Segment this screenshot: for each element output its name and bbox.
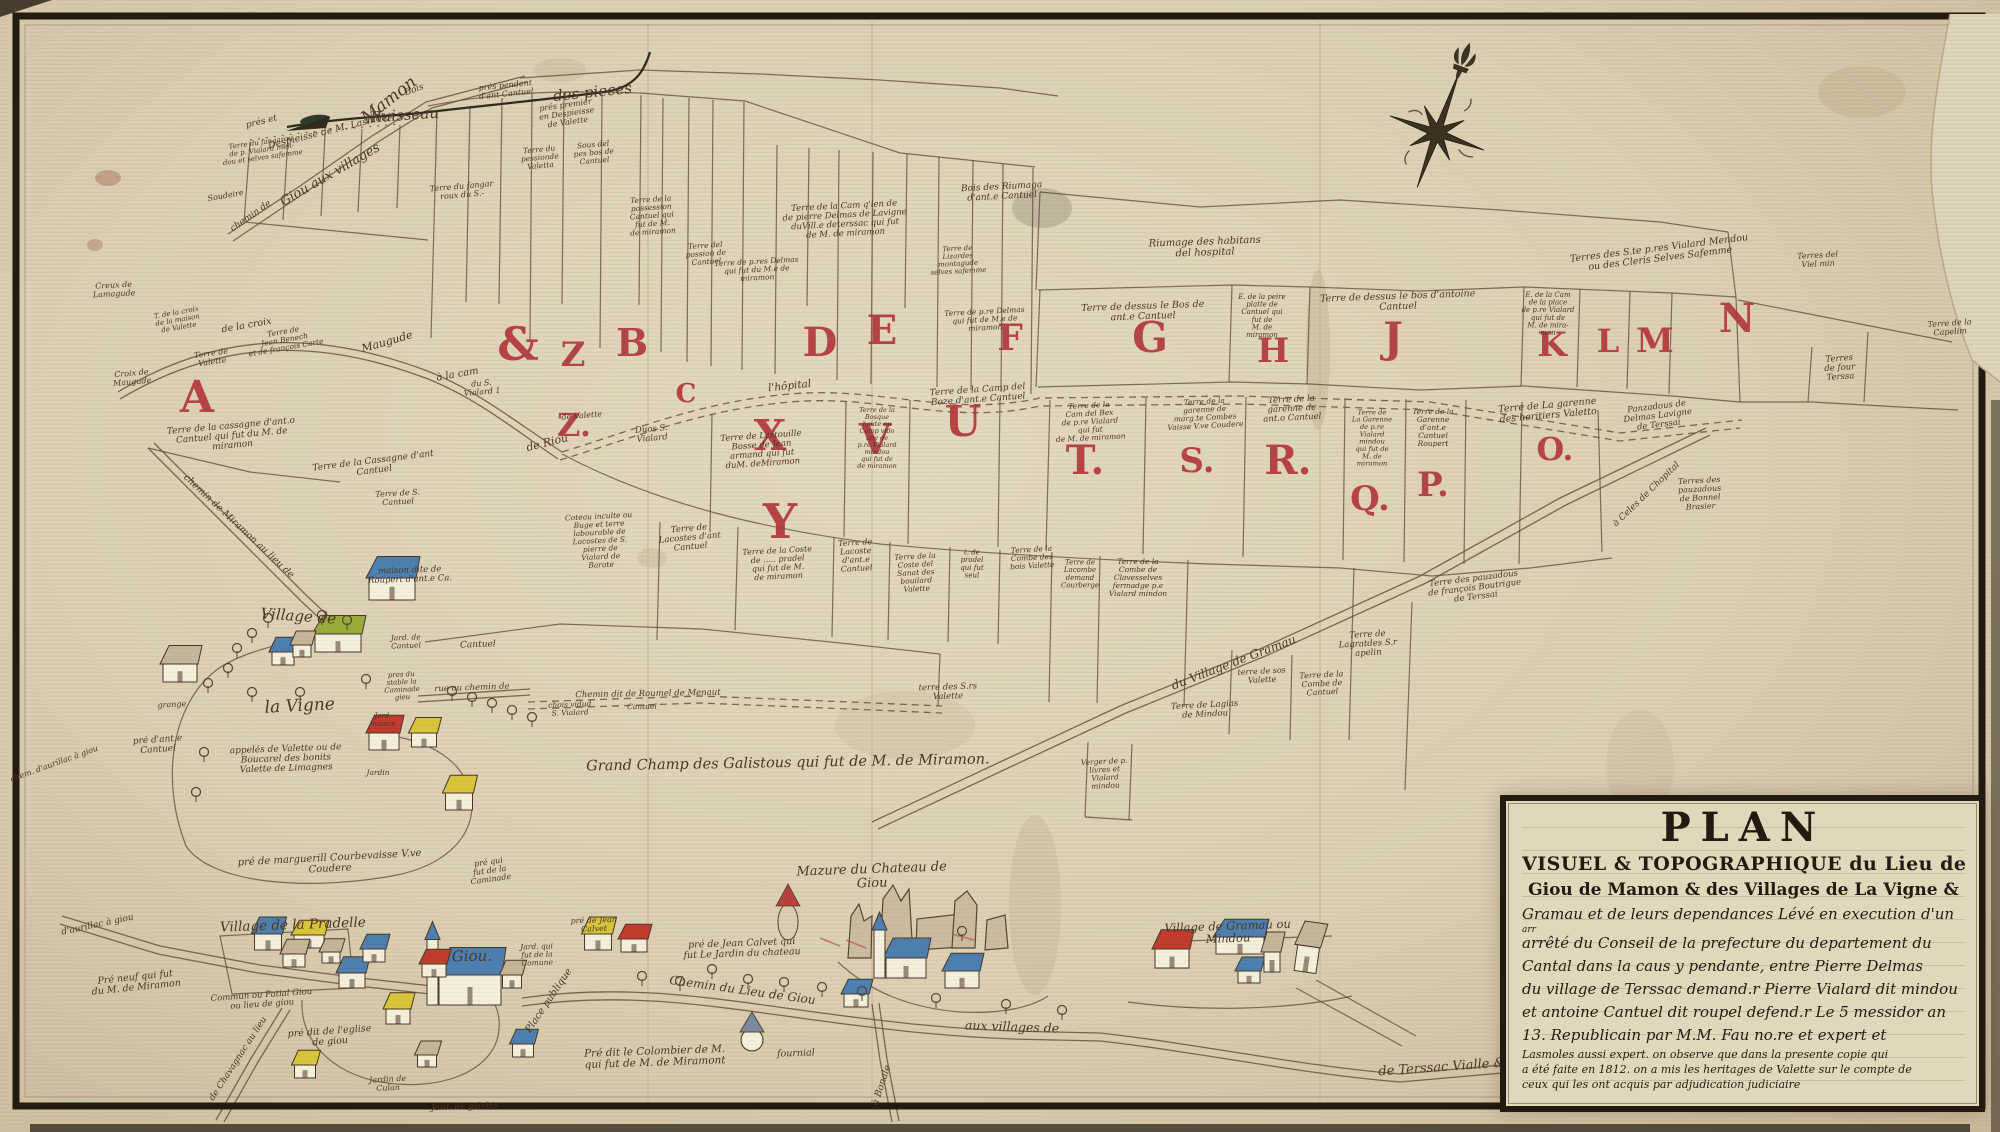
map-label: d'aurillac à giou xyxy=(60,911,135,937)
map-label: Terre de laCapelim xyxy=(1927,317,1972,338)
map-label: t. depradelqui futseul xyxy=(960,549,984,580)
village-house xyxy=(1152,930,1194,968)
map-label: Terre de lapossessionCantuel quifut de M… xyxy=(628,193,677,237)
map-label: Terre deValette xyxy=(193,346,230,368)
map-label: Terre de laCombe deClavesselvesfermadge … xyxy=(1109,557,1167,598)
colombier-tower xyxy=(740,1012,764,1051)
tree-icon xyxy=(708,965,717,980)
map-label: Pré neuf qui futdu M. de Miramon xyxy=(90,967,181,998)
map-label: chois vidudS. Vialard xyxy=(548,699,592,718)
map-label: Terre de laGarenned'ant.eCantuelRoupert xyxy=(1412,407,1453,448)
map-label: pré dit de l'eglisede giou xyxy=(287,1023,373,1050)
map-label: Maugude xyxy=(359,328,415,355)
map-label: maison dite deRoupert d'ant.e Ca. xyxy=(367,564,453,586)
map-label: Creux deLamagude xyxy=(91,280,136,300)
map-label: Riumage des habitansdel hospital xyxy=(1147,235,1261,261)
parcel-letter: E xyxy=(867,307,898,354)
parcel-letter: A xyxy=(179,372,215,423)
map-label: Cantuel xyxy=(627,702,657,712)
map-label: du Village de Gramau xyxy=(1169,632,1298,692)
map-label: Terre de la Cam q'ien dede pierre Delmas… xyxy=(782,198,908,242)
map-label: Jard.maison xyxy=(370,712,396,728)
parcel-letter: J xyxy=(1379,313,1403,362)
map-label: pres dustable laCaminadegieu xyxy=(383,670,420,703)
map-label: Terre de laCam del Bexde p.re Vialardqui… xyxy=(1054,399,1126,444)
tree-icon xyxy=(818,983,827,998)
map-label: pré d'ant.eCantuel xyxy=(132,732,183,756)
cartouche-line: VISUEL & TOPOGRAPHIQUE du Lieu de xyxy=(1522,851,1965,878)
map-label: Village de xyxy=(260,604,337,627)
manuscript-map: &ZBCDEFGHJKLMNAZ.XVUYT.S.R.Q.P.O.Ruissea… xyxy=(0,0,2000,1132)
title-cartouche: PLAN VISUEL & TOPOGRAPHIQUE du Lieu deGi… xyxy=(1500,795,1985,1112)
map-label: grange xyxy=(157,699,186,710)
tree-icon xyxy=(362,675,371,690)
map-label: Coteau inculte ouBuge et terrelabourable… xyxy=(565,510,635,571)
map-label: chemin de Miramon au lieu de xyxy=(181,472,296,581)
map-label: Terre deLa Garennede p.reVialardmindouqu… xyxy=(1351,408,1392,467)
map-label: à Celes de Chopital xyxy=(1611,459,1683,529)
parcel-letter: M xyxy=(1636,321,1674,361)
map-label: Sous delpes bos deCantuel xyxy=(573,138,616,167)
map-label: la Vigne xyxy=(264,694,335,718)
map-label: Commun ou Patial Giouou lieu de giou xyxy=(210,987,313,1013)
map-label: E. de la Camde la placede p.re Vialardqu… xyxy=(1522,291,1575,337)
village-house xyxy=(409,718,442,748)
map-label: Terres des S.te p.res Vialard Mendouou d… xyxy=(1569,232,1750,275)
map-label: Pré dit le Colombier de M.qui fut de M. … xyxy=(583,1043,727,1071)
map-label: Soudeire xyxy=(207,188,245,203)
map-label: pré quifut de laCaminade xyxy=(468,855,512,887)
map-label: Terre de La garennedes heritiers Valetto xyxy=(1498,396,1598,426)
map-label: Terre deLacostes d'antCantuel xyxy=(657,521,723,555)
map-label: Croix deMaugude xyxy=(111,367,152,388)
map-label: Giou. xyxy=(452,947,493,966)
map-label: Terre de la Camp delBoze d'ant.e Cantuel xyxy=(929,382,1027,408)
parcel-letter: P. xyxy=(1417,465,1449,505)
village-houses xyxy=(160,557,1328,1079)
village-house xyxy=(942,953,984,988)
tree-icon xyxy=(204,679,213,694)
map-label: Jard. quifut de laComune xyxy=(518,941,554,967)
map-label: Terres despauzadousde BonnelBrasier xyxy=(1677,475,1722,512)
cartouche-line: Lasmoles aussi expert. on observe que da… xyxy=(1522,1047,1965,1062)
map-label: Jardin deCulan xyxy=(367,1074,407,1094)
village-house xyxy=(510,1029,539,1057)
tree-icon xyxy=(488,699,497,714)
village-house xyxy=(618,924,652,952)
map-label: terre de sosValette xyxy=(1237,665,1286,685)
parcel-letter: T. xyxy=(1066,437,1105,484)
cartouche-line: Giou de Mamon & des Villages de La Vigne… xyxy=(1522,878,1965,903)
map-label: Terre de lagarenne deant.o Cantuel xyxy=(1262,393,1322,424)
parcel-letter: Q. xyxy=(1350,479,1390,519)
map-label: Terre dupessiondeValetta xyxy=(520,143,561,171)
parcel-letter: B xyxy=(616,320,648,365)
map-label: du S.Vialard 1 xyxy=(463,377,501,398)
map-label: aux villages de xyxy=(965,1017,1060,1035)
map-label: Jardin xyxy=(364,768,389,777)
map-label: pré de marguerill Courbevaisse V.veCoude… xyxy=(237,848,422,879)
map-label: Verger de p.livres etVialardmindou xyxy=(1081,756,1129,792)
map-label: Terre de la Costede ..... pradelqui fut … xyxy=(742,544,814,583)
fleur-de-lis-icon xyxy=(1447,39,1480,81)
tree-icon xyxy=(932,994,941,1009)
map-label: de Terssac Vialle & xyxy=(1378,1056,1506,1080)
map-label: Duos S.Vialard xyxy=(634,423,669,445)
map-label: Village de la Pradelle xyxy=(220,914,366,935)
tree-icon xyxy=(508,706,517,721)
compass-rose-icon xyxy=(1370,26,1517,205)
village-house xyxy=(443,775,478,810)
cartouche-title: PLAN xyxy=(1522,805,1965,851)
village-house xyxy=(360,934,390,962)
map-label: appelés de Valette ou deBoucarel des bon… xyxy=(230,741,343,775)
map-label: à Bonale xyxy=(870,1063,894,1107)
tree-icon xyxy=(224,664,233,679)
cartouche-text-block: VISUEL & TOPOGRAPHIQUE du Lieu deGiou de… xyxy=(1522,851,1965,1092)
map-label: Jard. deCantuel xyxy=(389,632,422,650)
parcel-letter: Y xyxy=(762,494,798,550)
map-label: Chemin dit de Roumel de Menaut xyxy=(575,688,721,701)
map-label: l'hôpital xyxy=(768,378,812,394)
map-label: prés et xyxy=(245,112,279,130)
tree-icon xyxy=(638,972,647,987)
village-house xyxy=(280,939,310,967)
parcel-letter: Z xyxy=(561,335,586,375)
map-label: prés premieren Despieissede Valette xyxy=(537,97,596,131)
map-label: Terres delViel min xyxy=(1797,250,1839,270)
map-label: de Riou xyxy=(525,431,569,454)
map-label: Cantuel xyxy=(460,639,496,650)
map-label: Terre de laCoste delSanat desbouilardVal… xyxy=(894,551,937,595)
map-label: chem. d'aurillac à giou xyxy=(9,744,99,784)
map-label: Terresde fourTerssa xyxy=(1823,353,1857,384)
village-house xyxy=(292,1050,321,1078)
tree-icon xyxy=(248,688,257,703)
village-house xyxy=(419,949,451,977)
tree-icon xyxy=(233,644,242,659)
tree-icon xyxy=(1002,1000,1011,1015)
map-label: rue ou chemin de xyxy=(434,682,510,695)
map-label: Terre de dessus le Bos deant.e Cantuel xyxy=(1081,299,1205,325)
cartouche-line: 13. Republicain par M.M. Fau no.re et ex… xyxy=(1522,1024,1965,1047)
map-label: Mazure du Chateau deGiou xyxy=(795,859,948,893)
map-label: Terre de lagarenne demarg.te CombesVaiss… xyxy=(1166,395,1244,432)
cartouche-line: arrêté du Conseil de la prefecture du de… xyxy=(1522,932,1965,955)
tree-icon xyxy=(192,788,201,803)
tree-icon xyxy=(1058,1006,1067,1021)
map-label: Terre deLacombedemandCourberge xyxy=(1061,559,1099,590)
village-house xyxy=(1261,932,1285,972)
village-house xyxy=(383,993,415,1024)
map-label: T. de la croixde la maisonde Valette xyxy=(153,305,202,336)
map-label: Terre de laCombe desbois Valette xyxy=(1009,544,1055,572)
tree-icon xyxy=(200,748,209,763)
map-label: Terre de dessus le bos d'antoineCantuel xyxy=(1320,288,1476,315)
parcel-letter: O. xyxy=(1536,430,1573,468)
village-house xyxy=(1235,957,1265,983)
cartouche-line: a été faite en 1812. on a mis les herita… xyxy=(1522,1062,1965,1077)
map-label: Terre du fangarroux du S.- xyxy=(429,179,495,202)
cartouche-line: Cantal dans la caus y pendante, entre Pi… xyxy=(1522,955,1965,978)
village-house xyxy=(160,646,202,683)
cartouche-line: ceux qui les ont acquis par adjudication… xyxy=(1522,1077,1965,1092)
parcel-letter: & xyxy=(497,317,539,371)
village-house xyxy=(415,1041,442,1067)
cartouche-line: du village de Terssac demand.r Pierre Vi… xyxy=(1522,978,1965,1001)
map-label: Terre de laCombe deCantuel xyxy=(1299,669,1345,698)
map-label: Grand Champ des Galistous qui fut de M. … xyxy=(586,751,990,774)
map-label: Terre de LestouilleBosse de Jeanarmand q… xyxy=(720,428,804,471)
map-label: Terre de p.res Delmasqui fut du M.e demi… xyxy=(714,255,800,285)
map-label: Terre de S.Cantuel xyxy=(375,488,420,508)
cartouche-line: Gramau et de leurs dependances Lévé en e… xyxy=(1522,903,1965,926)
parcel-letter: R. xyxy=(1264,437,1311,484)
tree-icon xyxy=(248,629,257,644)
map-label: prés pendentd'ant Cantuel xyxy=(478,78,535,101)
map-label: de la croix xyxy=(221,316,273,336)
map-label: Terre du fangaroude p. Vialard men-dou e… xyxy=(220,133,303,167)
village-house xyxy=(1291,920,1328,974)
map-label: Jard. de galabis xyxy=(429,1101,499,1113)
tree-icon xyxy=(528,713,537,728)
map-label: Terre deLagratdes S.rapelin xyxy=(1337,628,1399,659)
map-label: fournial xyxy=(776,1047,815,1059)
cartouche-line: et antoine Cantuel dit roupel defend.r L… xyxy=(1522,1001,1965,1024)
parcel-letter: D xyxy=(803,319,838,366)
parcel-letter: C xyxy=(676,379,697,409)
tree-icon xyxy=(468,693,477,708)
map-label: Terre deLacosted'ant.eCantuel xyxy=(838,537,874,574)
parcel-letter: S. xyxy=(1179,441,1214,481)
map-label: Panzadous deDelmas Lavignede Terssai xyxy=(1621,398,1694,435)
map-label: Terre de la Cassagne d'antCantuel xyxy=(312,449,436,483)
parcel-letter: L xyxy=(1597,322,1620,360)
parcel-letter: N xyxy=(1719,295,1756,342)
village-house xyxy=(290,631,316,657)
village-house xyxy=(841,979,873,1007)
map-label: pré de Jean Calvet quifut Le Jardin du c… xyxy=(682,936,801,961)
